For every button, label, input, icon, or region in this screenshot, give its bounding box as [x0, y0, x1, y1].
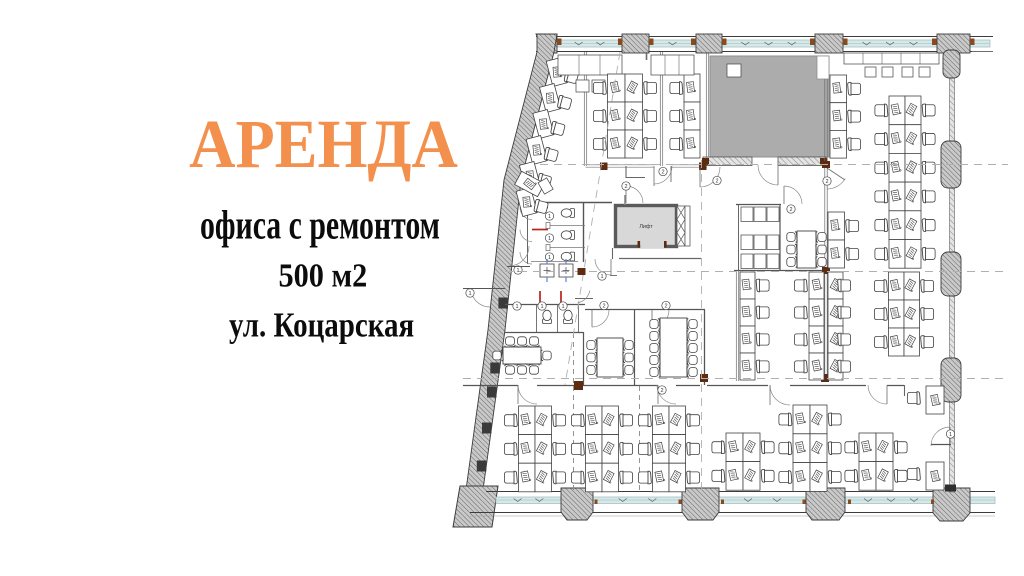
svg-text:1: 1: [548, 255, 551, 261]
svg-text:АРЕНДА: АРЕНДА: [189, 107, 458, 183]
svg-text:2: 2: [602, 303, 605, 309]
svg-text:2: 2: [715, 178, 718, 184]
svg-text:1: 1: [548, 214, 551, 220]
svg-text:1: 1: [515, 304, 518, 310]
svg-text:1: 1: [600, 274, 603, 280]
svg-text:офиса с ремонтом: офиса с ремонтом: [200, 202, 440, 248]
svg-text:500 м2: 500 м2: [279, 256, 368, 294]
svg-text:1: 1: [548, 236, 551, 242]
svg-text:1: 1: [516, 268, 519, 274]
svg-text:1: 1: [949, 432, 952, 438]
svg-text:2: 2: [789, 207, 792, 213]
svg-text:1: 1: [468, 291, 471, 297]
svg-text:2: 2: [825, 179, 828, 185]
svg-text:2: 2: [624, 184, 627, 190]
svg-text:2: 2: [664, 303, 667, 309]
svg-text:1: 1: [561, 304, 564, 310]
svg-text:Лифт: Лифт: [639, 224, 653, 230]
svg-text:1: 1: [540, 304, 543, 310]
svg-text:ул. Коцарская: ул. Коцарская: [229, 305, 414, 344]
svg-text:2: 2: [660, 388, 663, 394]
svg-text:2: 2: [661, 169, 664, 175]
